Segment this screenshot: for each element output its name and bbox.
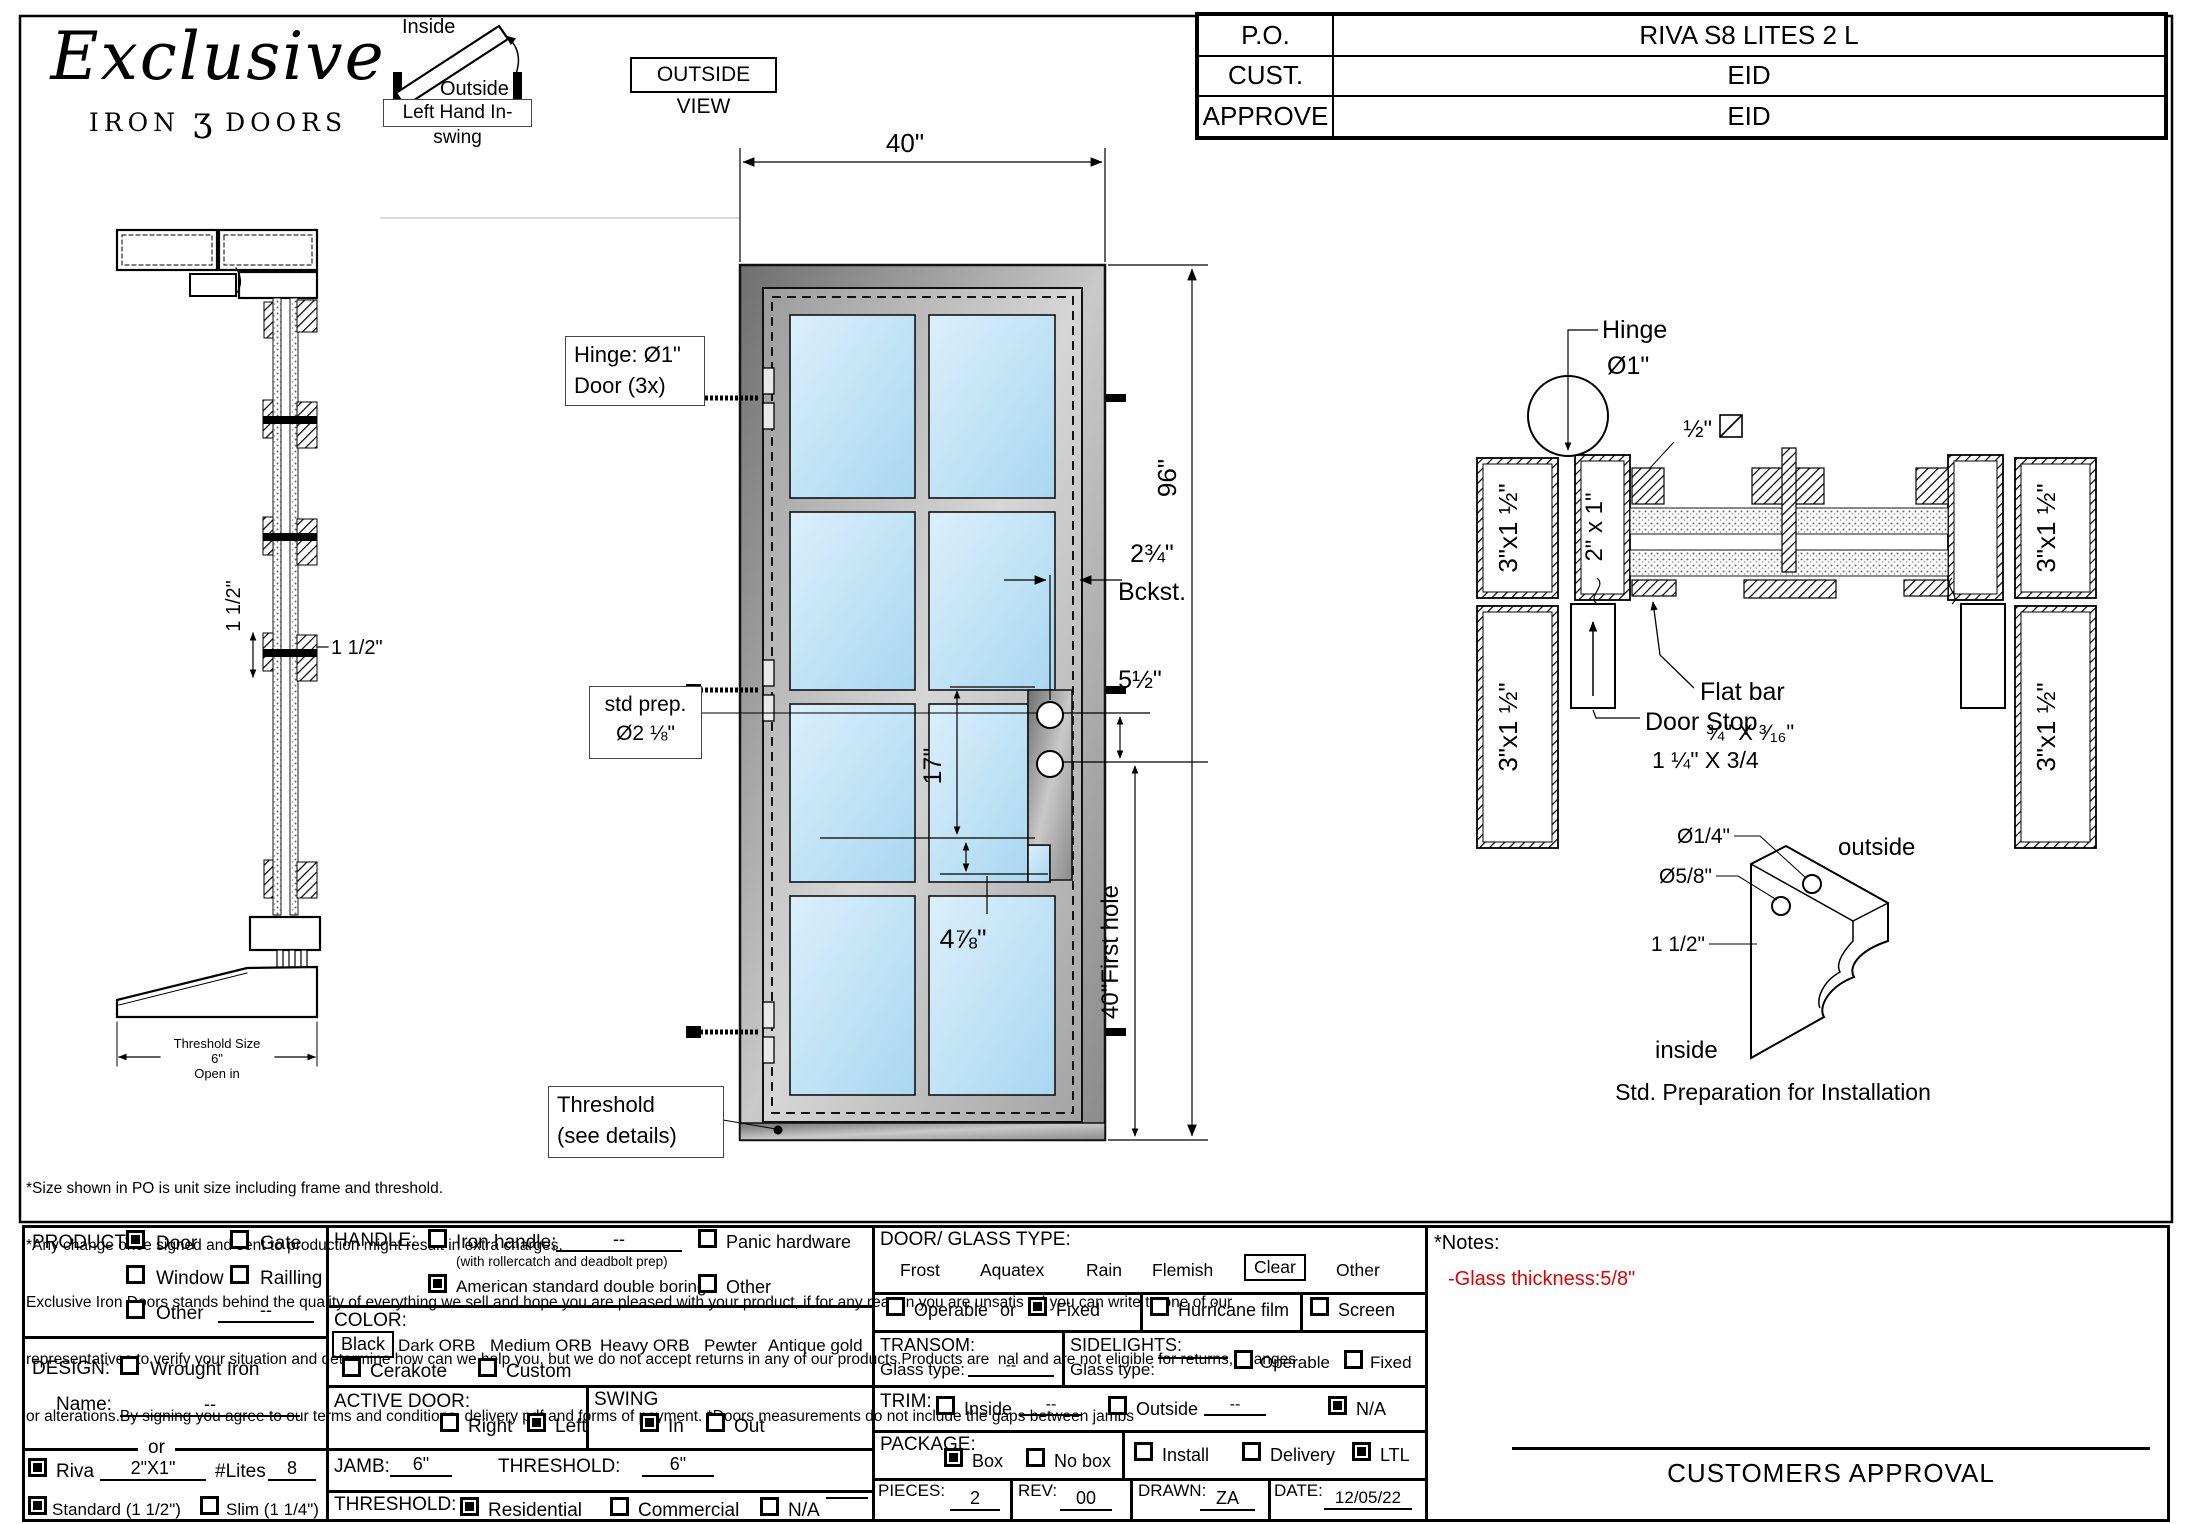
option-railing: Railling [260,1268,322,1290]
section-dim-horizontal: 1 1/2" [331,637,383,659]
swing-inside-label: Inside [402,16,455,38]
logo-iron: IRON [89,108,180,137]
install-caption: Std. Preparation for Installation [1615,1079,1931,1105]
notes-title: *Notes: [1434,1232,1500,1255]
color-medium-orb[interactable]: Medium ORB [490,1336,592,1356]
checkbox-standard[interactable] [28,1496,47,1515]
option-delivery: Delivery [1270,1445,1335,1466]
checkbox-left[interactable] [527,1413,546,1432]
threshold-section [117,967,317,1017]
po-table: P.O.RIVA S8 LITES 2 L CUST.EID APPROVEEI… [1195,12,2168,140]
checkbox-hurricane[interactable] [1150,1297,1169,1316]
checkbox-sidelight-operable[interactable] [1234,1350,1253,1369]
transom-label: TRANSOM: [880,1335,975,1356]
checkbox-trim-inside[interactable] [936,1396,955,1415]
checkbox-nobox[interactable] [1026,1448,1045,1467]
design-name-value[interactable]: -- [120,1394,300,1417]
checkbox-riva[interactable] [28,1458,47,1477]
option-trim-inside: Inside [964,1399,1012,1420]
swing-caption: Left Hand In-swing [383,99,532,127]
checkbox-right[interactable] [440,1413,459,1432]
glass-rain[interactable]: Rain [1086,1260,1122,1281]
checkbox-product-other[interactable] [126,1300,145,1319]
checkbox-fixed[interactable] [1028,1297,1047,1316]
option-trim-na: N/A [1356,1399,1386,1420]
option-door: Door [156,1233,197,1255]
hole-dia-58: Ø5/8" [1659,865,1712,888]
threshold-type-label: THRESHOLD: [334,1494,456,1516]
threshold-open-label: Open in [194,1066,240,1081]
option-wrought-iron: Wrought Iron [150,1359,259,1381]
date-value[interactable]: 12/05/22 [1324,1488,1412,1510]
product-other-value[interactable]: -- [218,1300,314,1323]
glass-flemish[interactable]: Flemish [1152,1260,1213,1281]
color-label: COLOR: [334,1310,407,1332]
trim-label: TRIM: [880,1391,932,1413]
door-elevation: 40" 96" 2¾" Bckst. 5½" 17" 4⅞" 40"First … [686,128,1208,1140]
option-standard: Standard (1 1/2") [52,1500,181,1520]
option-iron-handle: Iron handle; [456,1232,556,1254]
checkbox-ltl[interactable] [1352,1442,1371,1461]
checkbox-screen[interactable] [1310,1297,1329,1316]
checkbox-railing[interactable] [230,1265,249,1284]
inside-label: inside [1655,1037,1718,1064]
checkbox-cerakote[interactable] [342,1358,361,1377]
grid-line [1268,1478,1271,1522]
glass-thickness-note: -Glass thickness:5/8" [1448,1268,1635,1291]
checkbox-threshold-na[interactable] [760,1497,779,1516]
checkbox-trim-na[interactable] [1328,1396,1347,1415]
logo-doors: DOORS [225,108,347,137]
transom-glass-value[interactable]: -- [968,1357,1054,1377]
rev-label: REV: [1018,1481,1057,1501]
section-dim-rotated: 1 1/2" [223,580,245,632]
offset-dim: 1 1/2" [1651,933,1705,956]
grid-line [1122,1430,1125,1478]
checkbox-wrought-iron[interactable] [120,1356,139,1375]
option-residential: Residential [488,1500,582,1522]
trim-inside-value[interactable]: -- [1020,1396,1082,1416]
swing-label: SWING [594,1389,658,1411]
checkbox-operable[interactable] [886,1297,905,1316]
hinge-callout-line2: Door (3x) [574,371,696,402]
step-dimension: 4⅞" [939,924,986,954]
glass-other[interactable]: Other [1336,1260,1380,1281]
door-stop-right [1961,604,2005,708]
hinge-callout-line1: Hinge: Ø1" [574,340,696,371]
iron-handle-value[interactable]: -- [556,1229,682,1252]
install-detail: Ø1/4" Ø5/8" 1 1/2" outside inside Std. P… [1615,825,1931,1105]
pieces-value[interactable]: 2 [950,1488,1000,1511]
stile-size-label: 2" x 1" [1581,492,1608,561]
grid-line [326,1305,872,1308]
grid-line [1130,1478,1133,1522]
riva-size-value[interactable]: 2"X1" [100,1458,206,1481]
spec-sheet: { "logo":{"name":"Exclusive","iron":"IRO… [0,0,2192,1524]
pieces-label: PIECES: [878,1481,945,1501]
checkbox-install[interactable] [1134,1442,1153,1461]
color-dark-orb[interactable]: Dark ORB [398,1336,475,1356]
grid-line [1425,1225,1428,1522]
handle-note: (with rollercatch and deadbolt prep) [456,1254,668,1269]
prep-callout-line2: Ø2 ⅛" [590,719,701,748]
swing-outside-label: Outside [440,78,509,100]
plan-hinge-dia: Ø1" [1607,352,1649,380]
checkbox-box[interactable] [944,1448,963,1467]
checkbox-out[interactable] [706,1413,725,1432]
checkbox-commercial[interactable] [610,1497,629,1516]
option-ltl: LTL [1380,1445,1410,1466]
color-heavy-orb[interactable]: Heavy ORB [600,1336,690,1356]
checkbox-window[interactable] [126,1265,145,1284]
checkbox-delivery[interactable] [1242,1442,1261,1461]
grid-line [326,1225,329,1522]
option-screen: Screen [1338,1300,1395,1321]
jamb-threshold-label: THRESHOLD: [498,1456,620,1478]
checkbox-residential[interactable] [460,1497,479,1516]
jamb-threshold-value[interactable]: 6" [642,1454,714,1477]
option-commercial: Commercial [638,1500,739,1522]
bore-hole-2 [1037,751,1063,777]
checkbox-trim-outside[interactable] [1108,1396,1127,1415]
handle-label: HANDLE: [334,1230,416,1252]
checkbox-gate[interactable] [230,1230,249,1249]
grid-line [1010,1478,1013,1522]
disclaimer-line: *Size shown in PO is unit size including… [26,1179,1296,1198]
trim-outside-value[interactable]: -- [1204,1396,1266,1416]
hinge-callout: Hinge: Ø1" Door (3x) [565,336,705,406]
grid-line [326,1385,1425,1388]
option-riva: Riva [56,1461,94,1483]
plan-half-label: ½" [1683,416,1712,443]
height-dimension: 96" [1152,459,1182,497]
option-sidelight-fixed: Fixed [1370,1353,1412,1373]
option-out: Out [734,1416,765,1438]
option-window: Window [156,1268,224,1290]
option-install: Install [1162,1445,1209,1466]
jamb-size-label: 3"x1 ½" [1493,682,1523,771]
or-divider: or [138,1437,175,1459]
option-product-other: Other [156,1303,204,1325]
option-custom: Custom [506,1361,571,1383]
color-black-selected[interactable]: Black [332,1331,394,1358]
operable-or-label: or [1000,1300,1016,1321]
sidelights-glass-label: Glass type: [1070,1360,1155,1380]
hole-spacing-dimension: 5½" [1118,666,1162,694]
option-gate: Gate [260,1233,301,1255]
rev-value[interactable]: 00 [1060,1488,1112,1511]
brand-logo: Exclusive [48,18,388,95]
design-label: DESIGN: [32,1358,110,1380]
option-operable: Operable [914,1300,988,1321]
sidelights-label: SIDELIGHTS: [1070,1335,1182,1356]
signature-line[interactable] [1512,1447,2150,1450]
checkbox-american-boring[interactable] [428,1274,447,1293]
grid-line [22,1336,326,1339]
grid-line [1300,1292,1303,1330]
lites-label: #Lites [215,1461,266,1483]
threshold-size-label: Threshold Size [174,1036,261,1051]
drawn-label: DRAWN: [1138,1481,1206,1501]
product-label: PRODUCT: [32,1232,129,1254]
hole-dia-quarter: Ø1/4" [1677,825,1730,848]
door-stop-label: Door Stop [1645,708,1758,736]
approve-label: APPROVE [1198,96,1333,137]
option-box: Box [972,1451,1003,1472]
checkbox-iron-handle[interactable] [428,1229,447,1248]
option-hurricane: Hurricane film [1178,1300,1289,1321]
grid-line [872,1430,1425,1433]
side-section-view: 1 1/2" 1 1/2" Threshold Size 6" Open in [117,230,383,1081]
sidelights-glass-value[interactable] [1158,1357,1228,1359]
outside-label: outside [1838,834,1915,861]
bore-hole-1 [1037,702,1063,728]
flat-bar-label: Flat bar [1700,678,1785,706]
po-label: P.O. [1198,15,1333,56]
option-in: In [668,1416,684,1438]
grid-line [1062,1330,1065,1385]
view-label: OUTSIDE VIEW [630,57,777,93]
option-sidelight-operable: Operable [1260,1353,1330,1373]
plan-hinge-label: Hinge [1602,316,1667,344]
threshold-na-value[interactable] [826,1497,868,1499]
jamb-value[interactable]: 6" [390,1454,452,1477]
grid-line [1140,1292,1143,1330]
jamb-size-label: 3"x1 ½" [2031,483,2061,572]
threshold-callout-line1: Threshold [557,1090,715,1121]
logo-ornament-icon: ʒ [193,100,212,140]
option-fixed: Fixed [1056,1300,1100,1321]
grid-line [872,1330,1425,1333]
prep-callout: std prep. Ø2 ⅛" [589,686,702,759]
option-panic: Panic hardware [726,1232,851,1253]
option-threshold-na: N/A [788,1500,820,1522]
swing-diagram: Inside Outside [393,16,522,106]
glass-frost[interactable]: Frost [900,1260,940,1281]
seventeen-dimension: 17" [919,748,947,785]
grid-line [872,1292,1425,1295]
checkbox-custom[interactable] [478,1358,497,1377]
checkbox-handle-other[interactable] [698,1274,717,1293]
option-handle-other: Other [726,1277,771,1298]
cust-label: CUST. [1198,56,1333,97]
active-door-label: ACTIVE DOOR: [334,1391,470,1413]
glass-type-label: DOOR/ GLASS TYPE: [880,1229,1071,1251]
lites-value[interactable]: 8 [268,1458,316,1481]
approve-value: EID [1333,96,2165,137]
plan-section-detail: Hinge Ø1" ½" 3"x1 ½" 3"x1 ½" 3"x1 ½" 3"x… [1477,316,2096,848]
po-value: RIVA S8 LITES 2 L [1333,15,2165,56]
checkbox-in[interactable] [640,1413,659,1432]
threshold-size-value: 6" [211,1051,223,1066]
threshold-bar [740,1123,1105,1140]
color-pewter[interactable]: Pewter [704,1336,757,1356]
checkbox-door[interactable] [126,1230,145,1249]
option-trim-outside: Outside [1136,1399,1198,1420]
checkbox-panic[interactable] [698,1229,717,1248]
grid-line [326,1490,872,1493]
option-cerakote: Cerakote [370,1361,447,1383]
transom-glass-label: Glass type: [880,1360,965,1380]
jamb-size-label: 3"x1 ½" [2031,682,2061,771]
option-nobox: No box [1054,1451,1111,1472]
prep-callout-line1: std prep. [590,690,701,719]
option-american-boring: American standard double boring [456,1277,706,1297]
first-hole-dimension: 40"First hole [1097,885,1124,1019]
backset-label: Bckst. [1118,578,1186,606]
glass-aquatex[interactable]: Aquatex [980,1260,1044,1281]
backset-dimension: 2¾" [1130,540,1174,568]
width-dimension: 40" [886,128,924,158]
name-label: Name: [56,1394,112,1416]
anchor-hole-large [1772,897,1790,915]
option-right: Right [468,1416,512,1438]
option-slim: Slim (1 1/4") [226,1500,319,1520]
option-left: Left [555,1416,587,1438]
checkbox-slim[interactable] [200,1496,219,1515]
jamb-size-label: 3"x1 ½" [1493,483,1523,572]
drawn-value[interactable]: ZA [1200,1488,1255,1511]
glass-clear-selected[interactable]: Clear [1244,1254,1306,1281]
checkbox-sidelight-fixed[interactable] [1344,1350,1363,1369]
jamb-label: JAMB: [334,1456,390,1478]
door-stop-size: 1 ¼" X 3/4 [1652,747,1759,773]
customers-approval-label: CUSTOMERS APPROVAL [1512,1458,2150,1489]
date-label: DATE: [1274,1481,1323,1501]
color-antique-gold[interactable]: Antique gold [768,1336,863,1356]
cust-value: EID [1333,56,2165,97]
brand-logo-subtitle: IRON ʒ DOORS [48,100,388,140]
